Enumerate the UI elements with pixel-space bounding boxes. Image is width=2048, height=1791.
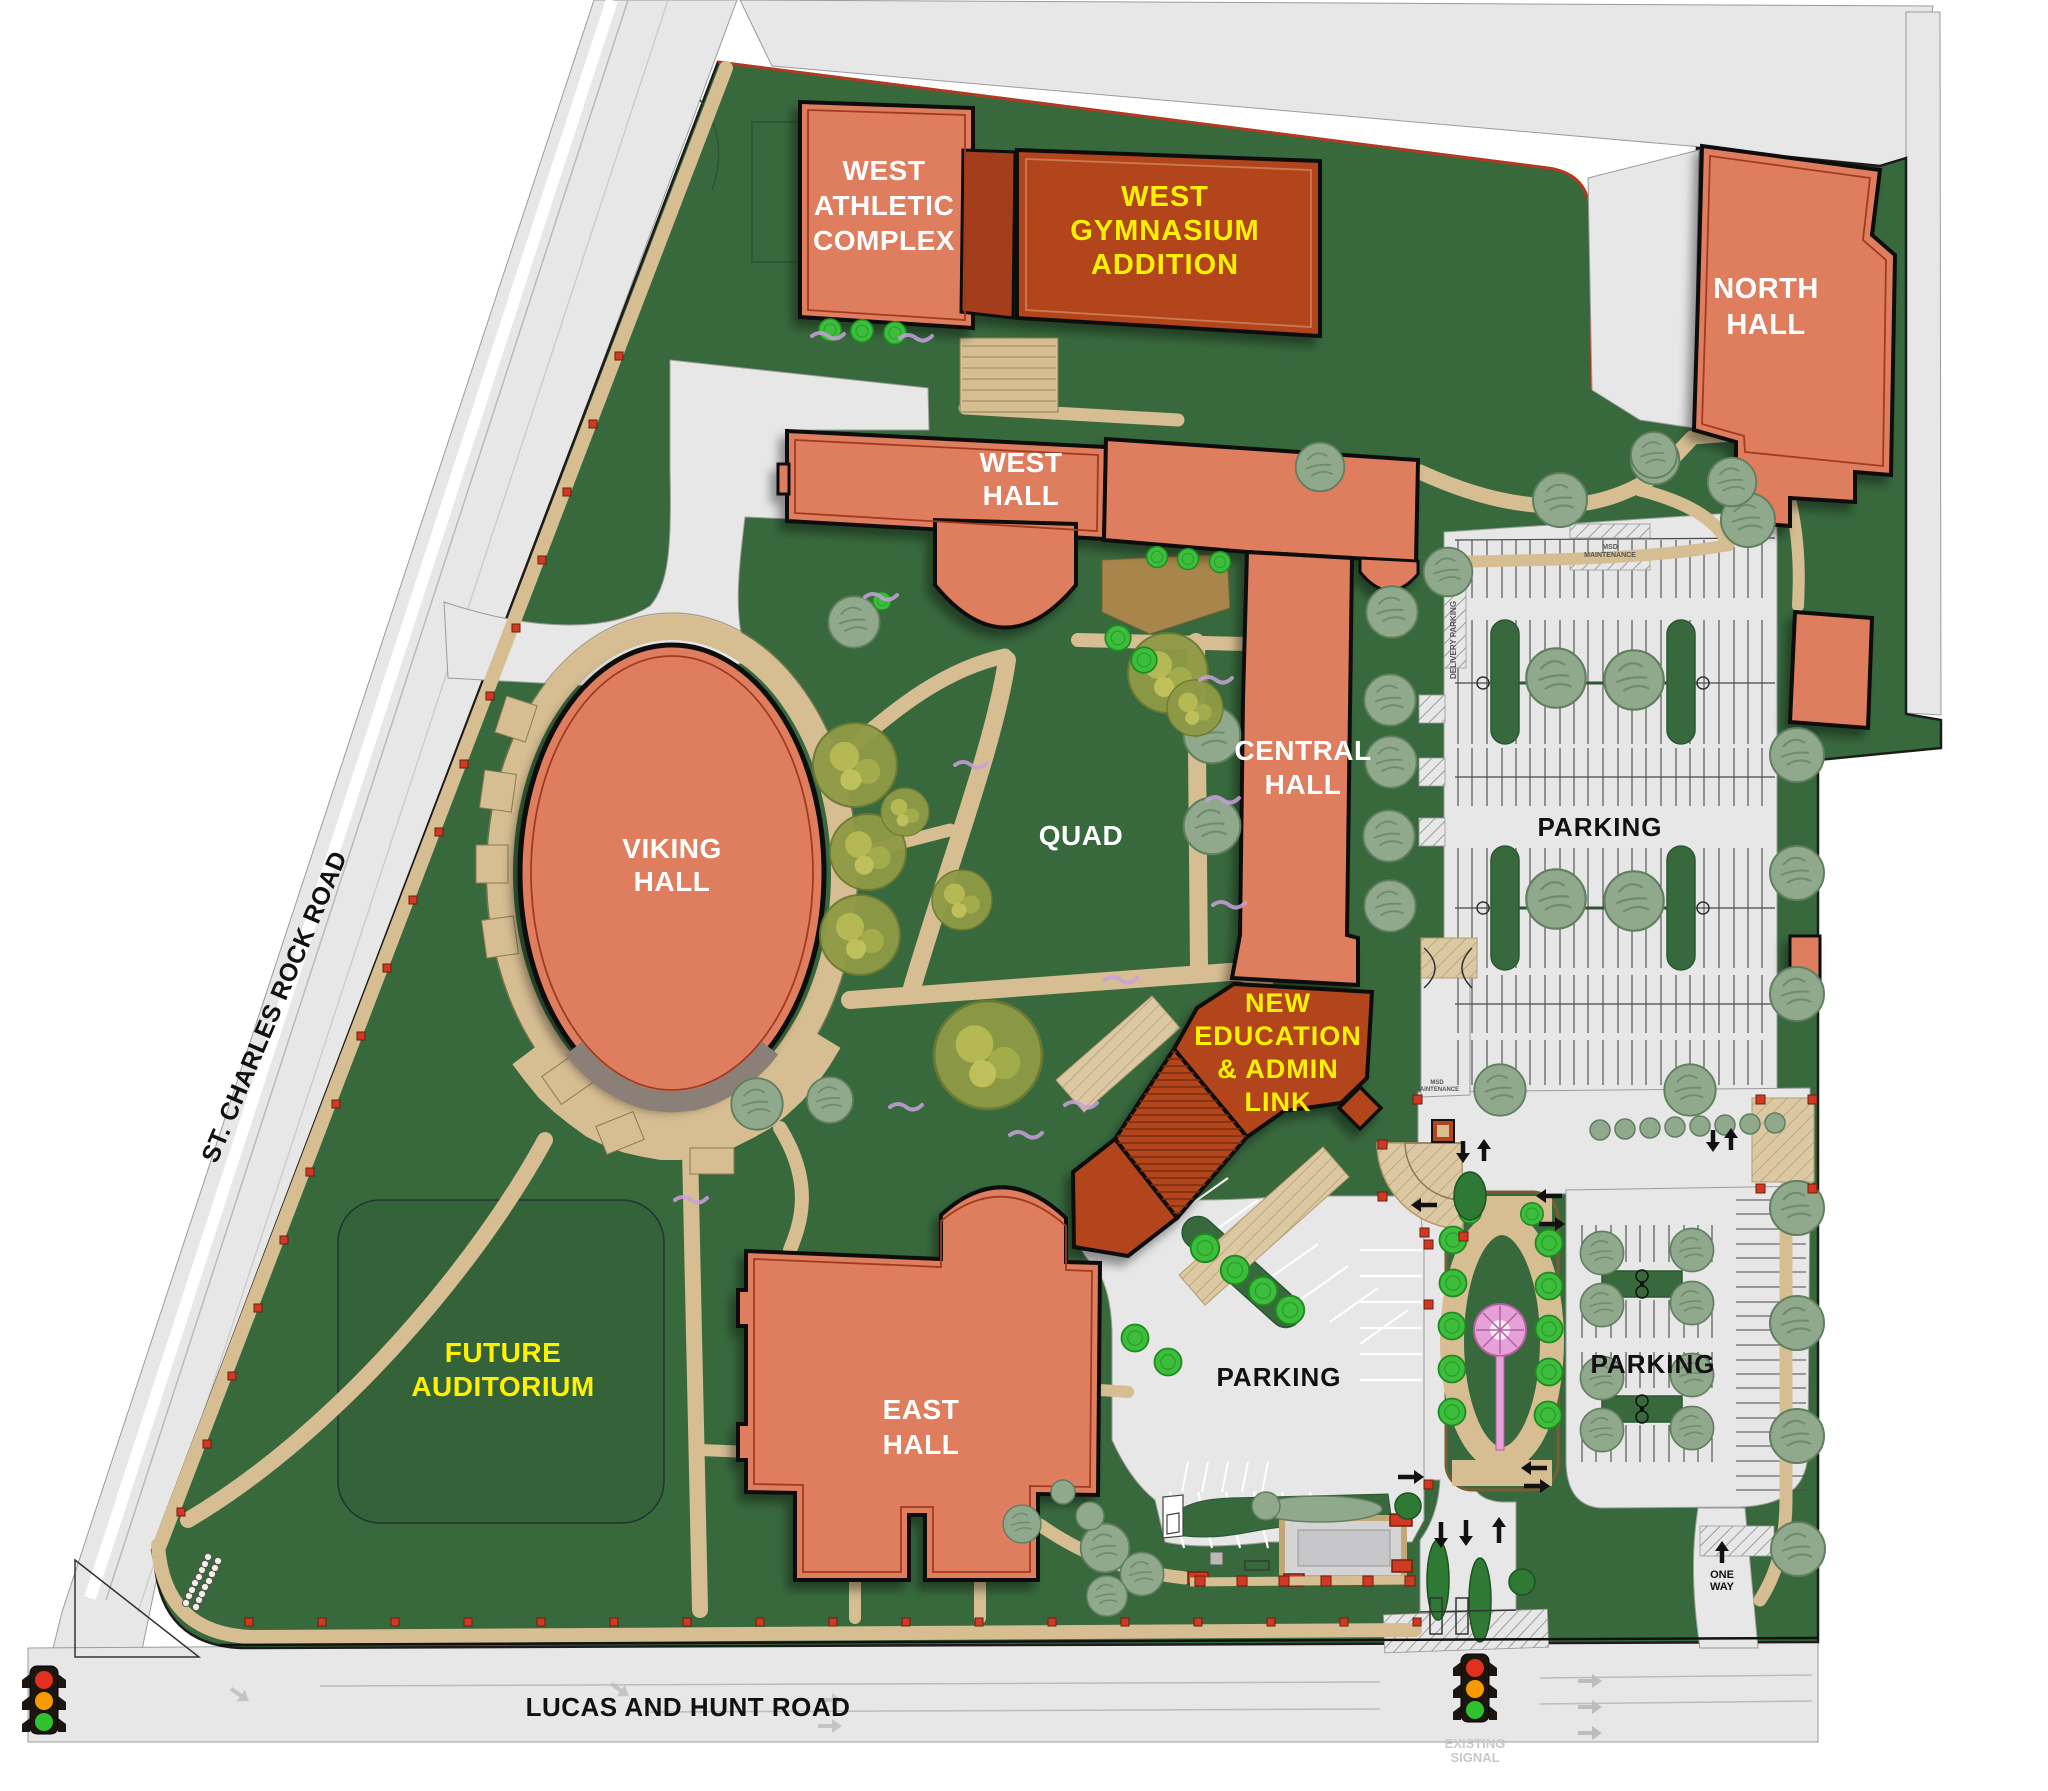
svg-text:EXISTINGSIGNAL: EXISTINGSIGNAL	[1445, 1736, 1506, 1765]
svg-text:PARKING: PARKING	[1217, 1362, 1342, 1392]
svg-text:DELIVERY PARKING: DELIVERY PARKING	[1449, 601, 1458, 679]
svg-text:ONEWAY: ONEWAY	[1710, 1569, 1735, 1593]
svg-text:PARKING: PARKING	[1591, 1349, 1716, 1379]
svg-text:QUAD: QUAD	[1039, 820, 1123, 851]
svg-text:LUCAS AND HUNT ROAD: LUCAS AND HUNT ROAD	[526, 1692, 851, 1722]
svg-text:PARKING: PARKING	[1538, 812, 1663, 842]
